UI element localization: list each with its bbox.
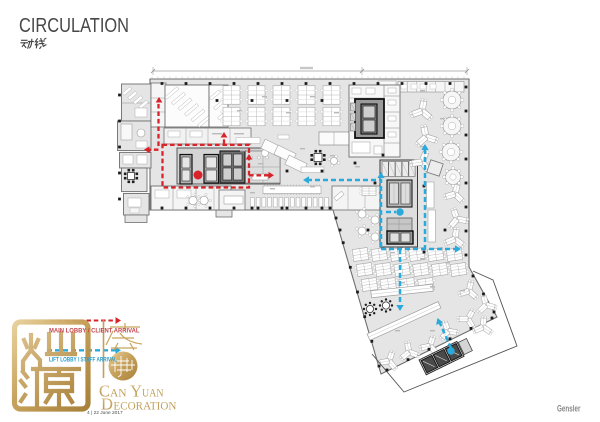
svg-text:4 | 22 June 2017: 4 | 22 June 2017 bbox=[87, 410, 123, 416]
svg-text:LIFT LOBBY / STAFF ARRIVAL: LIFT LOBBY / STAFF ARRIVAL bbox=[49, 357, 117, 364]
svg-text:Gensler: Gensler bbox=[557, 404, 581, 415]
svg-text:CIRCULATION: CIRCULATION bbox=[19, 15, 129, 37]
svg-text:MAIN LOBBY / CLIENT ARRIVAL: MAIN LOBBY / CLIENT ARRIVAL bbox=[49, 328, 140, 335]
